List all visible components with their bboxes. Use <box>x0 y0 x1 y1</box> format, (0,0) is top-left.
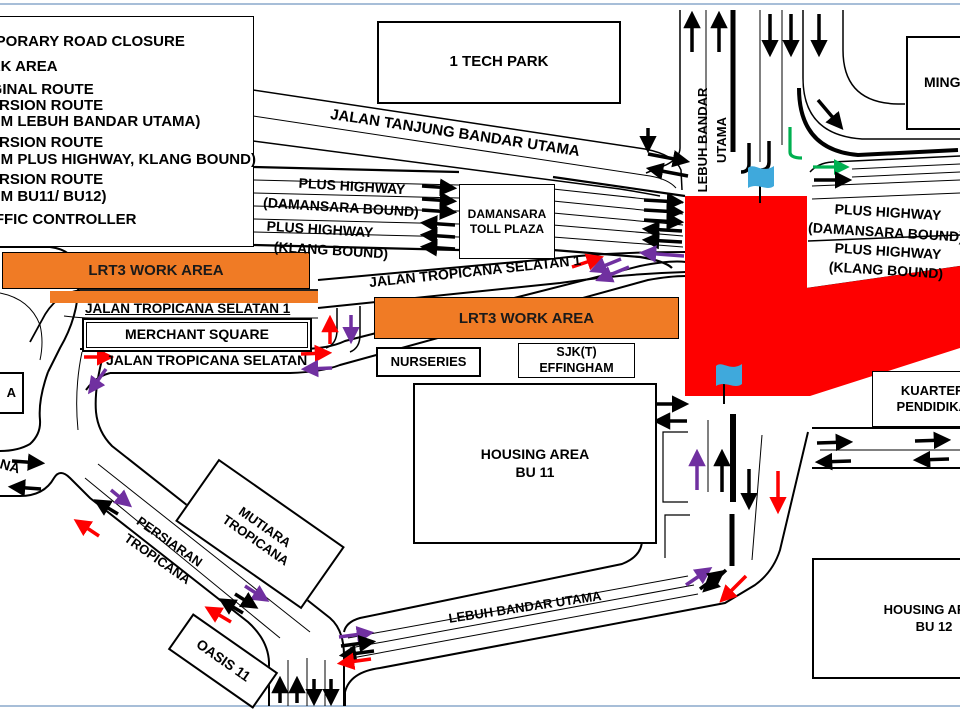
housing-bu12-box: HOUSING AREA BU 12 <box>812 558 960 679</box>
housing-bu12-label-2: BU 12 <box>916 619 953 635</box>
ming-box: MING <box>906 36 960 130</box>
kuarters-label-2: PENDIDIKAN <box>897 399 960 415</box>
jts1-west-road-label: JALAN TROPICANA SELATAN 1 <box>85 301 290 316</box>
kuarters-pendidikan-box: KUARTERS PENDIDIKAN <box>872 371 960 427</box>
tech-park-label: 1 TECH PARK <box>450 53 549 72</box>
legend-item-diversion-3b: (FROM BU11/ BU12) <box>0 188 107 207</box>
merchant-square-box: MERCHANT SQUARE <box>82 318 312 352</box>
traffic-controller-flag <box>716 364 742 404</box>
sjk-effingham-box: SJK(T) EFFINGHAM <box>518 343 635 378</box>
kuarters-label-1: KUARTERS <box>901 383 960 399</box>
housing-bu11-label-2: BU 11 <box>516 464 555 482</box>
sjk-label-2: EFFINGHAM <box>539 361 613 377</box>
lrt3-work-area-bar-west: LRT3 WORK AREA <box>2 252 310 289</box>
legend-box: TEMPORARY ROAD CLOSURE WORK AREA ORIGINA… <box>0 16 254 247</box>
toll-plaza-label-2: TOLL PLAZA <box>470 222 544 237</box>
nurseries-box: NURSERIES <box>376 347 481 377</box>
lebuh-bandar-utama-north-label: LEBUH BANDAR UTAMA <box>657 78 767 202</box>
housing-bu11-box: HOUSING AREA BU 11 <box>413 383 657 544</box>
cut-box-a-label: A <box>7 385 16 401</box>
lrt3-work-area-bar-central: LRT3 WORK AREA <box>374 297 679 339</box>
legend-item-closure: TEMPORARY ROAD CLOSURE <box>0 33 185 52</box>
toll-plaza-box: DAMANSARA TOLL PLAZA <box>459 184 555 259</box>
traffic-diversion-map: TEMPORARY ROAD CLOSURE WORK AREA ORIGINA… <box>0 0 960 720</box>
legend-item-diversion-2: DIVERSION ROUTE <box>0 134 103 153</box>
legend-item-controller: TRAFFIC CONTROLLER <box>0 211 136 230</box>
legend-item-diversion-1b: (FROM LEBUH BANDAR UTAMA) <box>0 113 200 132</box>
toll-plaza-label-1: DAMANSARA <box>468 207 547 222</box>
lrt3-work-area-label: LRT3 WORK AREA <box>88 262 223 279</box>
ming-label: MING <box>908 74 960 92</box>
cut-box-a: A <box>0 372 24 414</box>
lrt3-work-area-label: LRT3 WORK AREA <box>459 310 594 327</box>
nurseries-label: NURSERIES <box>391 354 467 370</box>
tech-park-box: 1 TECH PARK <box>377 21 621 104</box>
green-diversion-elbow <box>790 127 802 158</box>
legend-item-diversion-3: DIVERSION ROUTE <box>0 171 103 190</box>
sjk-label-1: SJK(T) <box>556 345 596 361</box>
legend-item-work-area: WORK AREA <box>0 58 58 77</box>
legend-item-diversion-2b: (FROM PLUS HIGHWAY, KLANG BOUND) <box>0 151 256 170</box>
housing-bu11-label-1: HOUSING AREA <box>481 446 589 464</box>
housing-bu12-label-1: HOUSING AREA <box>884 602 960 618</box>
jts-road-label: JALAN TROPICANA SELATAN <box>106 352 307 368</box>
